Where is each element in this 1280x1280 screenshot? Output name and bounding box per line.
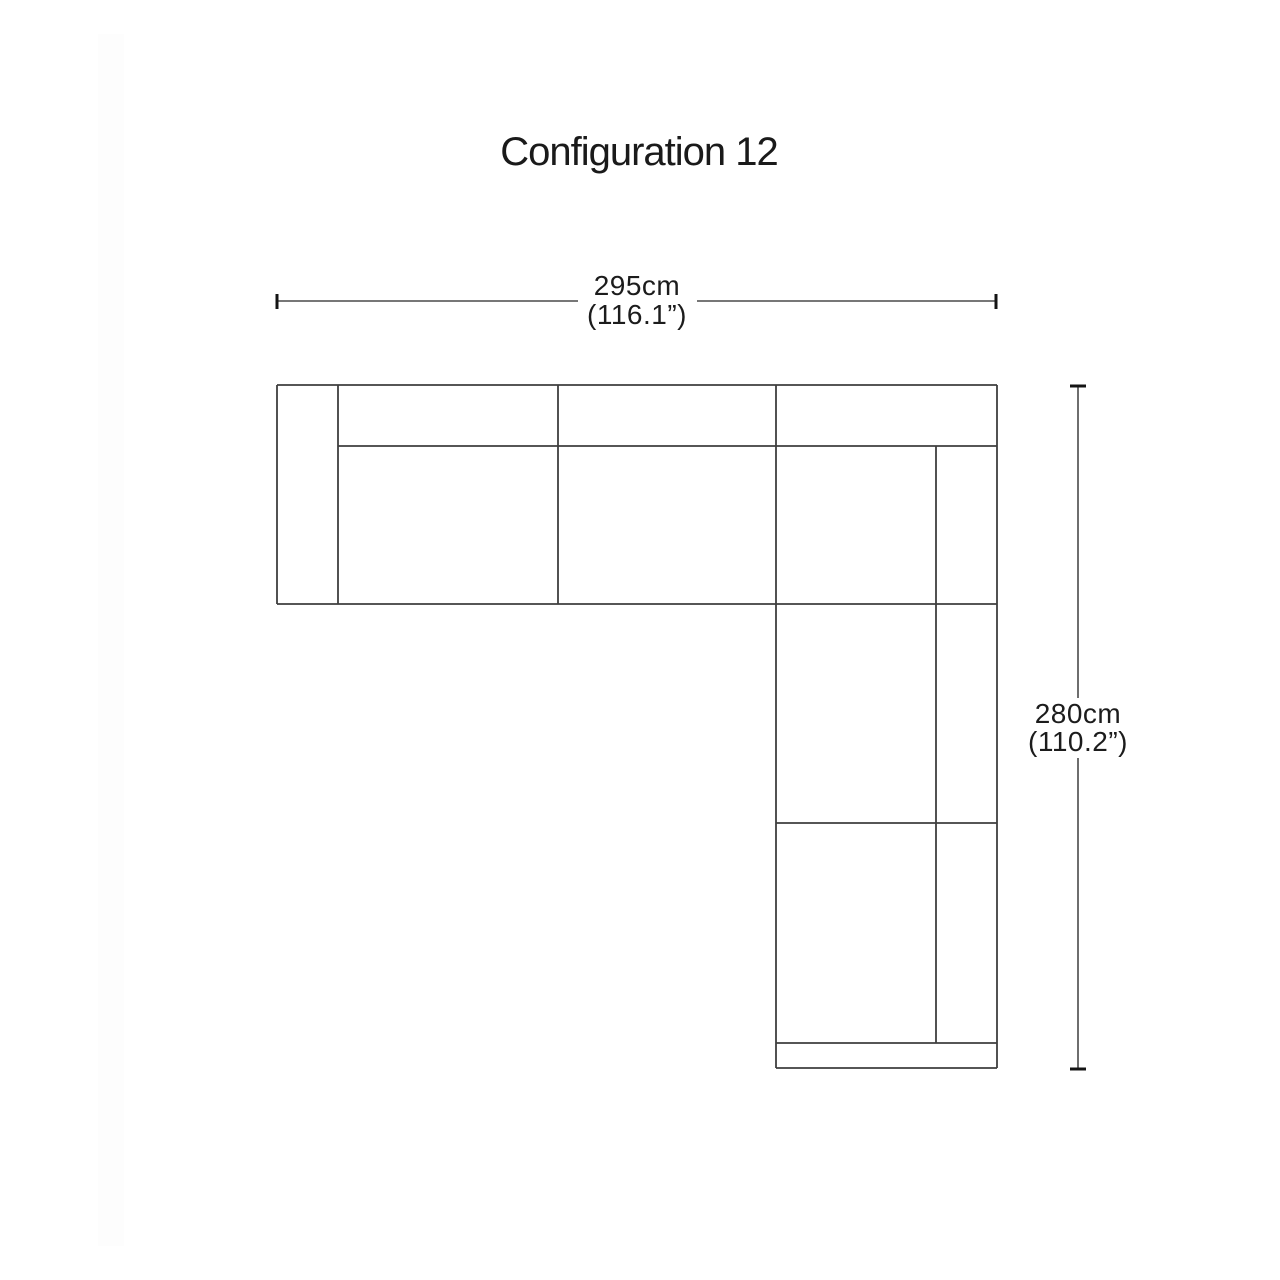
sofa-configuration-diagram xyxy=(0,0,1280,1280)
width-dimension-inches-label: (116.1”) xyxy=(487,301,787,329)
width-dimension-cm-label: 295cm xyxy=(487,272,787,300)
height-dimension-cm-label: 280cm xyxy=(958,700,1198,728)
sofa-outline xyxy=(277,385,997,1068)
furniture-dimension-diagram-page: Configuration 12 xyxy=(0,0,1280,1280)
height-dimension-inches-label: (110.2”) xyxy=(958,728,1198,756)
